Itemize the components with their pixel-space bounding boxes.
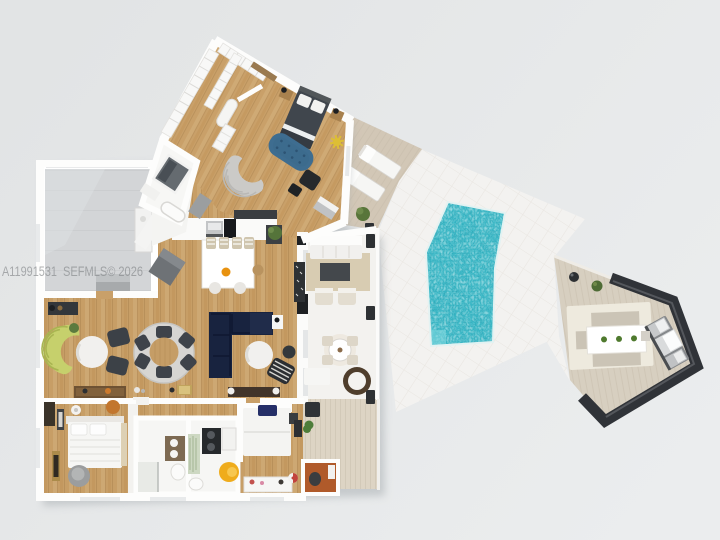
svg-text:SEFMLS© 2026: SEFMLS© 2026 xyxy=(63,263,143,279)
svg-text:A11991531: A11991531 xyxy=(2,263,57,279)
